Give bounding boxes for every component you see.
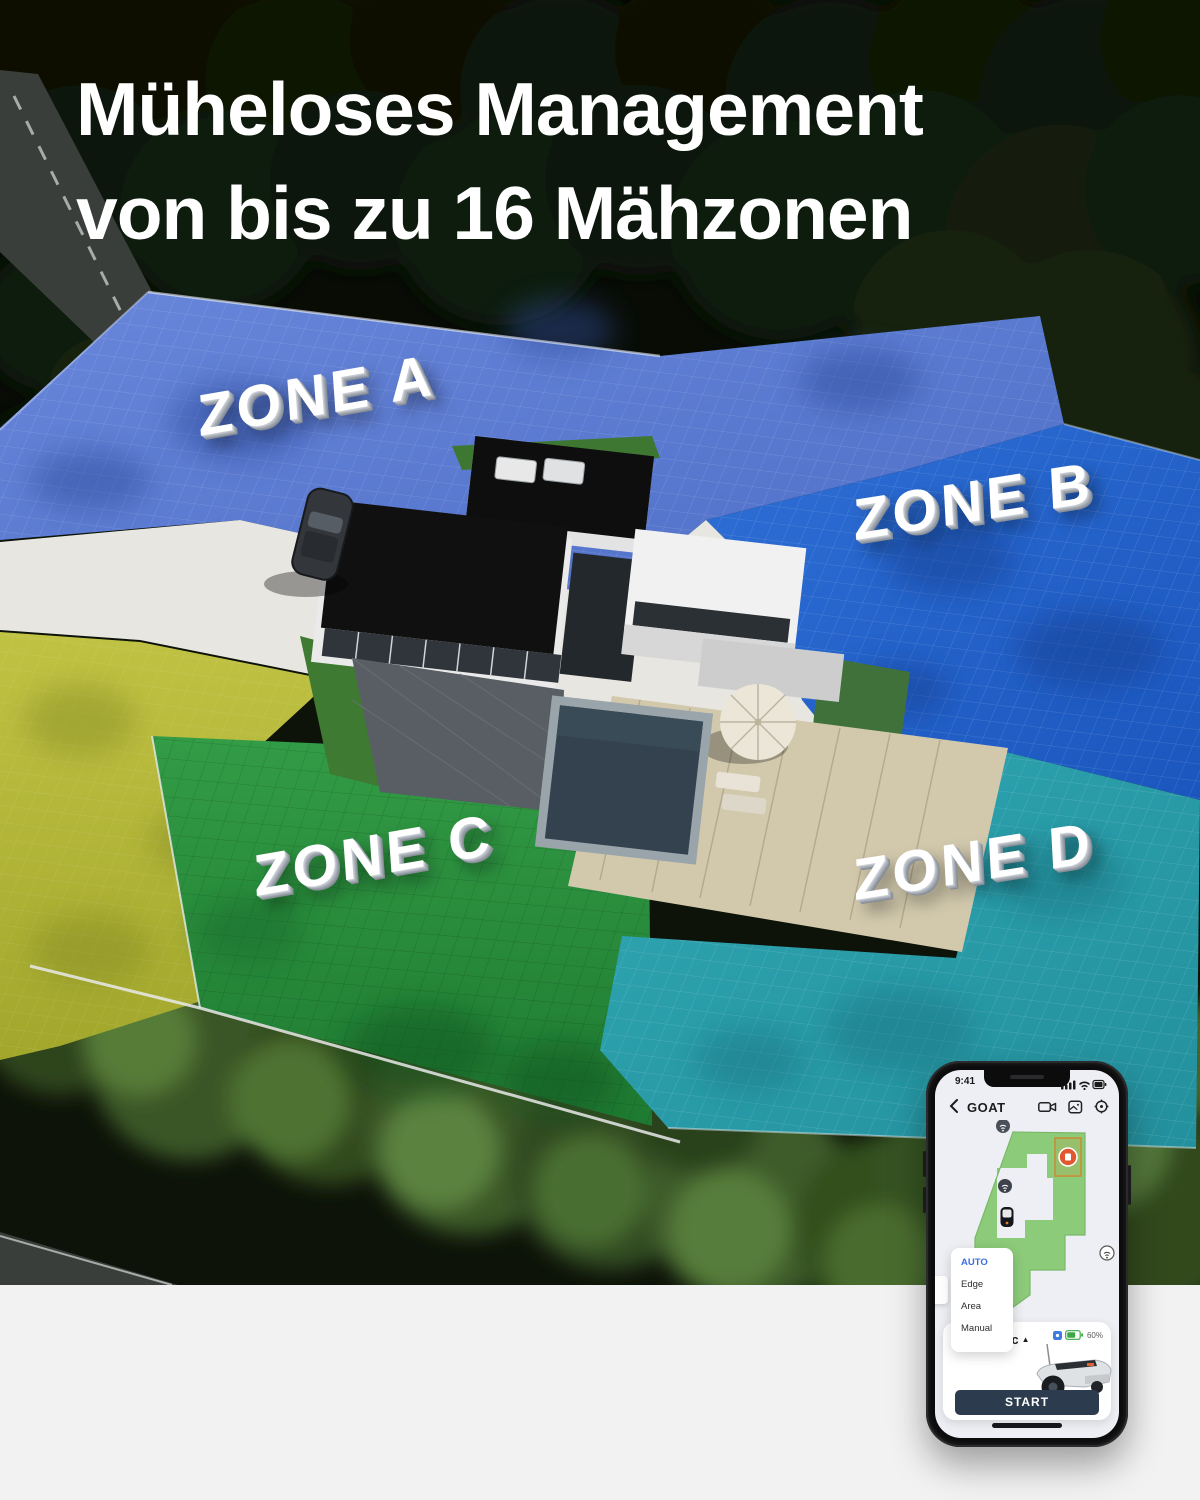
app-nav-bar: GOAT — [935, 1098, 1119, 1116]
status-icons — [1061, 1077, 1107, 1095]
phone-screen: 9:41 — [935, 1070, 1119, 1438]
back-button[interactable] — [949, 1099, 967, 1115]
battery-level-icon — [1065, 1330, 1084, 1340]
battery-percent: 60% — [1087, 1331, 1103, 1340]
phone-mockup: 9:41 — [926, 1061, 1128, 1447]
headline-line-2: von bis zu 16 Mähzonen — [76, 162, 923, 266]
marketing-page: Müheloses Management von bis zu 16 Mähzo… — [0, 0, 1200, 1500]
menu-item-area[interactable]: Area — [951, 1296, 1013, 1318]
menu-item-auto[interactable]: AUTO — [951, 1252, 1013, 1274]
menu-item-manual[interactable]: Manual — [951, 1318, 1013, 1340]
partial-card — [935, 1276, 948, 1304]
headline: Müheloses Management von bis zu 16 Mähzo… — [76, 58, 923, 265]
robot-status: 60% — [1053, 1330, 1103, 1340]
mode-menu: AUTO Edge Area Manual — [951, 1248, 1013, 1352]
power-button — [1128, 1165, 1131, 1205]
beacon-icon — [998, 1179, 1012, 1193]
app-title: GOAT — [967, 1100, 1006, 1115]
start-button[interactable]: START — [955, 1390, 1099, 1415]
mower-icon — [1001, 1207, 1014, 1227]
settings-icon[interactable] — [1094, 1099, 1109, 1114]
battery-icon — [1093, 1081, 1106, 1089]
volume-button — [923, 1187, 926, 1213]
station-marker — [1059, 1148, 1077, 1166]
home-indicator — [992, 1423, 1062, 1428]
connectivity-icon — [1053, 1331, 1062, 1340]
pool — [535, 695, 713, 864]
map-icon[interactable] — [1068, 1100, 1083, 1114]
volume-button — [923, 1151, 926, 1177]
status-time: 9:41 — [955, 1076, 975, 1087]
signal-icon — [1061, 1081, 1076, 1090]
headline-line-1: Müheloses Management — [76, 58, 923, 162]
beacon-icon — [996, 1120, 1010, 1133]
phone-notch — [984, 1070, 1070, 1087]
video-camera-icon[interactable] — [1038, 1100, 1057, 1114]
beacon-icon — [1100, 1246, 1114, 1260]
wifi-icon — [1080, 1082, 1089, 1086]
menu-item-edge[interactable]: Edge — [951, 1274, 1013, 1296]
